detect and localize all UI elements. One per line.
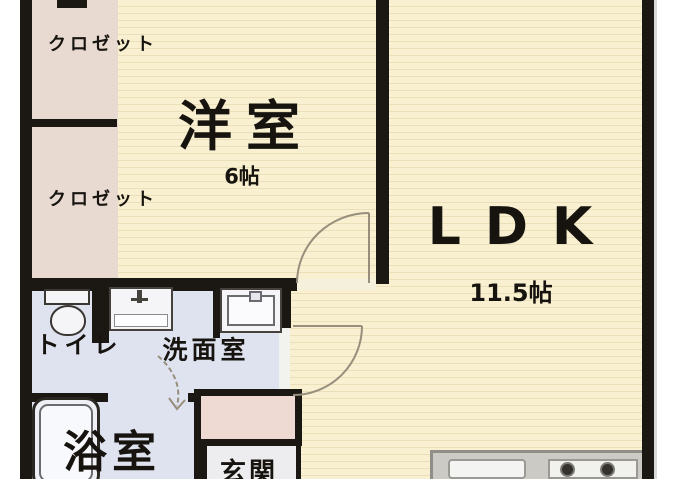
wall-western-ldk (376, 0, 389, 284)
wall-closet-divider (20, 119, 117, 127)
wall-right-shadow (654, 0, 657, 479)
toilet-tank (44, 289, 90, 305)
kitchen-sink (448, 459, 526, 479)
room-label-western: 洋室 (178, 100, 314, 154)
wall-left-outer (20, 0, 32, 479)
wall-top-stub (57, 0, 87, 8)
room-size-western: 6帖 (224, 167, 260, 188)
doorway-threshold-washroom (279, 328, 290, 393)
faucet-icon (137, 290, 142, 303)
room-label-toilet: トイレ (36, 333, 123, 357)
washing-machine-drain (249, 291, 262, 302)
room-size-ldk: 11.5帖 (469, 281, 552, 305)
doorway-threshold-western (297, 279, 376, 290)
faucet-bar-icon (131, 298, 148, 301)
wall-washroom-partition (213, 291, 220, 338)
room-label-closet-lower: クロゼット (48, 191, 158, 209)
floorplan-image: クロゼット クロゼット 洋室 6帖 LDK 11.5帖 トイレ 洗面室 浴室 玄… (0, 0, 673, 479)
room-label-closet-upper: クロゼット (48, 36, 158, 54)
room-label-ldk: LDK (428, 201, 617, 253)
shoe-cabinet (194, 389, 302, 446)
wall-right-outer (642, 0, 654, 479)
washbasin-bowl (114, 314, 168, 327)
room-label-washroom: 洗面室 (162, 338, 249, 363)
stove-burner-icon (600, 462, 615, 477)
stove-burner-icon (560, 462, 575, 477)
room-label-entrance: 玄関 (220, 460, 278, 479)
entrance-step-line (296, 443, 301, 479)
room-label-bathroom: 浴室 (63, 431, 161, 475)
